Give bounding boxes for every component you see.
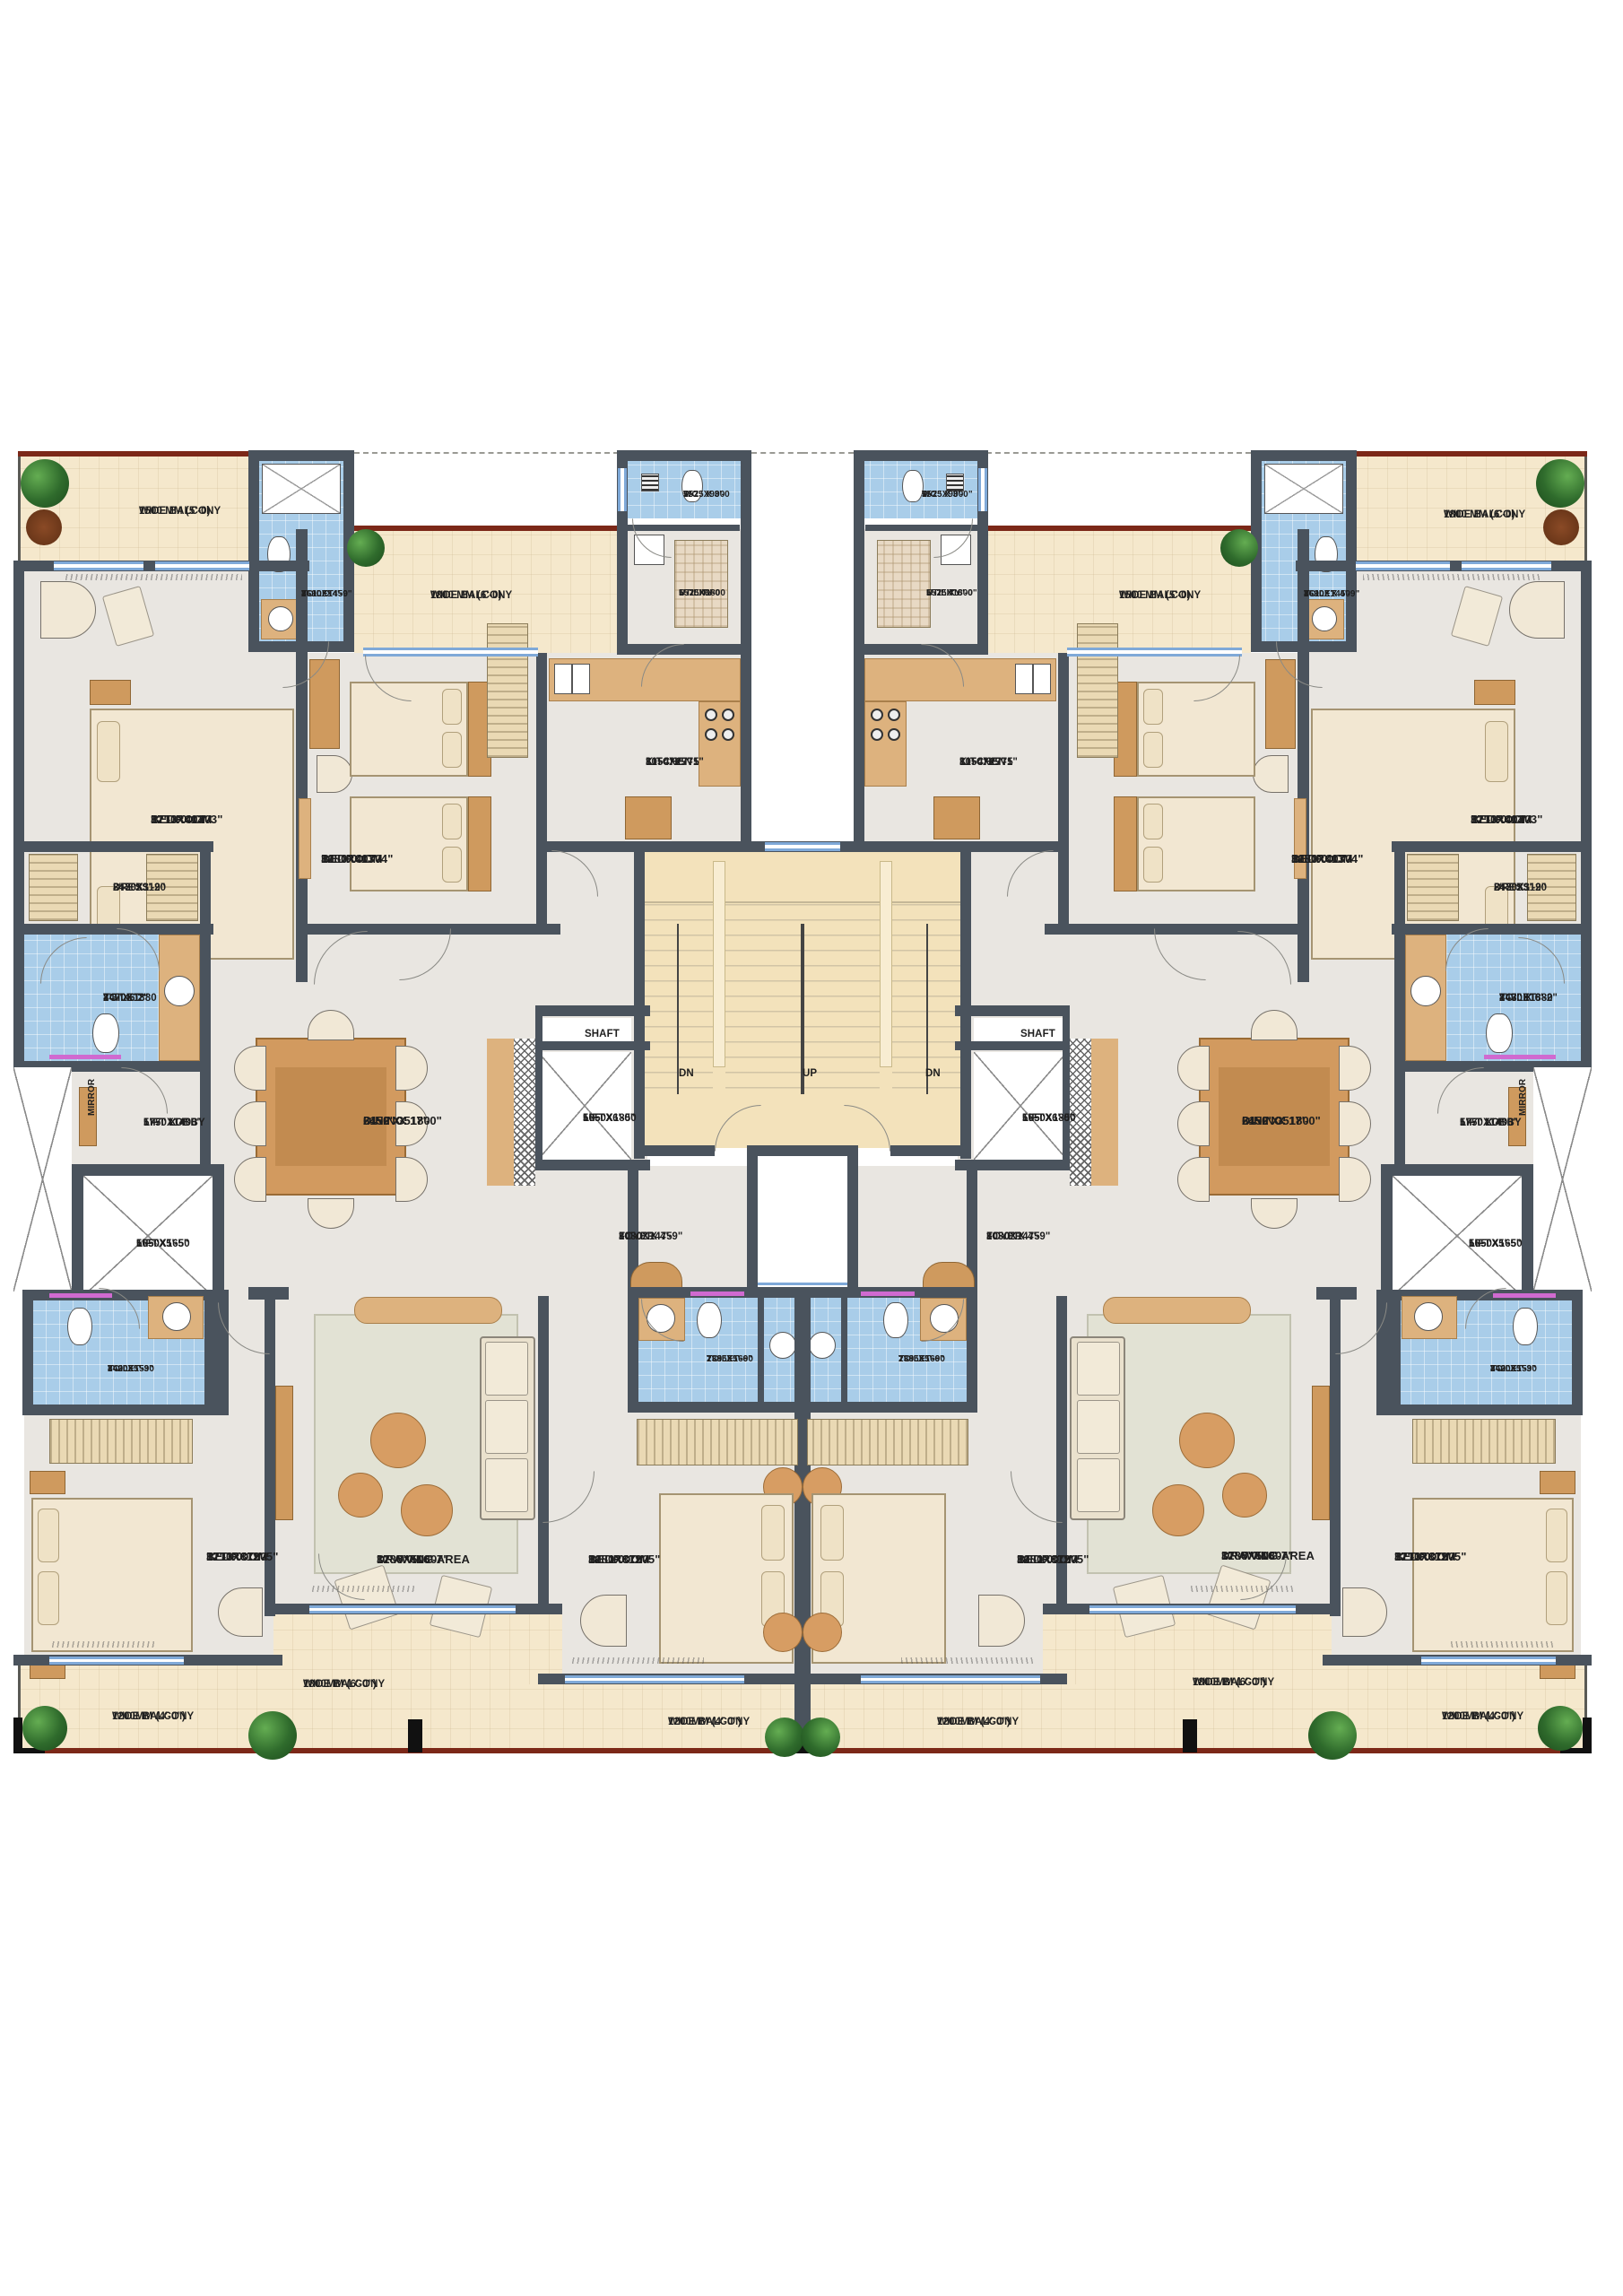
- floor-plan-canvas: 1500 MM (5'-0)WIDE BALCONYTOILET2690X145…: [0, 0, 1623, 2296]
- labels-layer: 1500 MM (5'-0)WIDE BALCONYTOILET2690X145…: [0, 0, 1623, 2296]
